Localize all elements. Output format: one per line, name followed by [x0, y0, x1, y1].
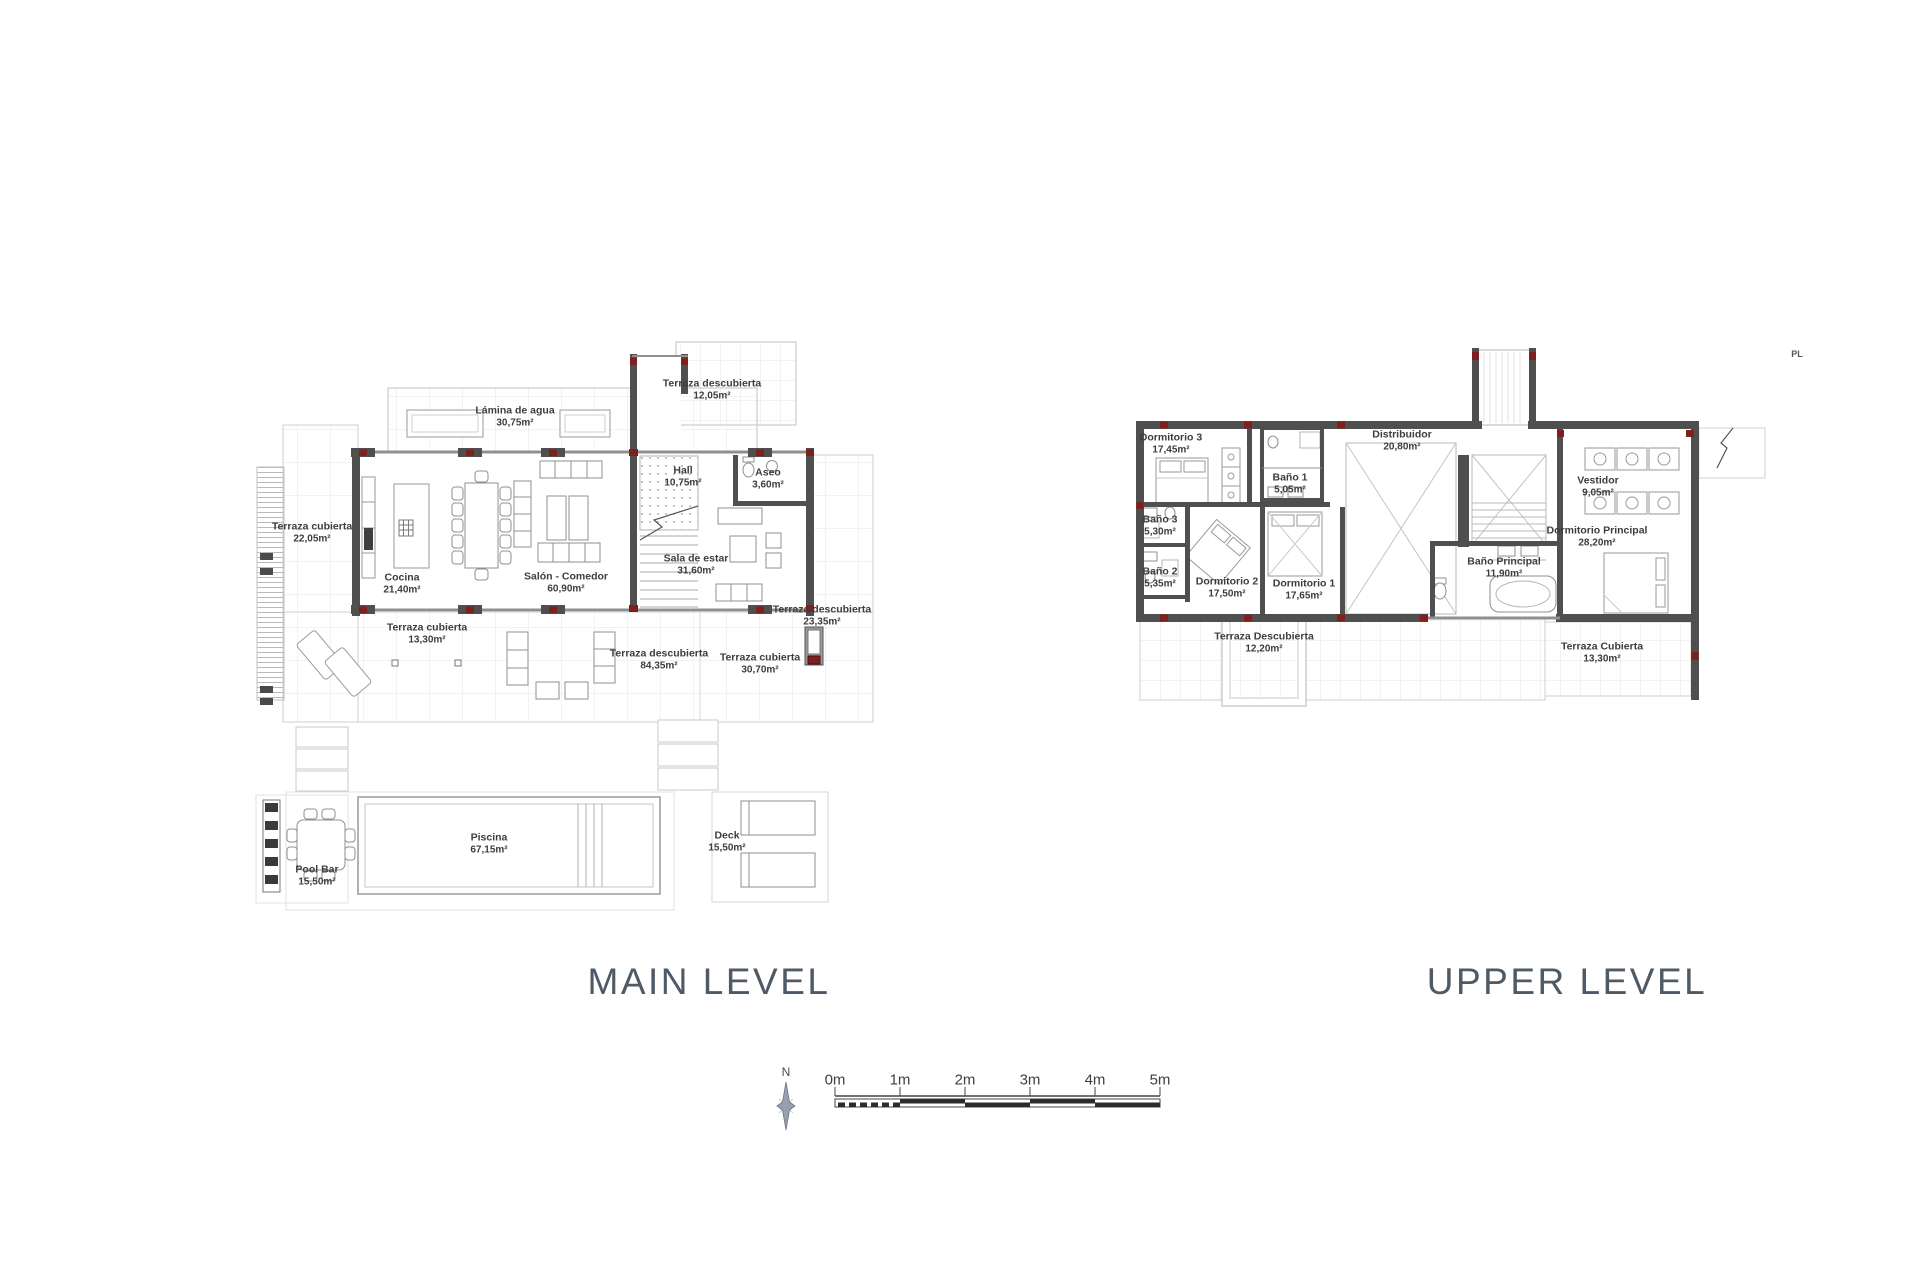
main-level-title: MAIN LEVEL: [588, 961, 831, 1003]
scale-label-3m: 3m: [1020, 1072, 1041, 1089]
room-label-terraza-cubierta-3070: Terraza cubierta30,70m²: [720, 652, 800, 677]
room-label-terraza-descubierta-1220: Terraza Descubierta12,20m²: [1214, 631, 1314, 656]
room-label-hall: Hall10,75m²: [664, 465, 701, 490]
room-label-bano-2: Baño 25,35m²: [1142, 566, 1177, 591]
north-label: N: [782, 1065, 791, 1079]
room-label-sala-de-estar: Sala de estar31,60m²: [664, 553, 729, 578]
room-label-dormitorio-1: Dormitorio 117,65m²: [1273, 578, 1335, 603]
scale-label-4m: 4m: [1085, 1072, 1106, 1089]
room-label-dormitorio-3: Dormitorio 317,45m²: [1140, 432, 1202, 457]
room-label-lamina-de-agua: Lámina de agua30,75m²: [475, 405, 554, 430]
upper-level-title: UPPER LEVEL: [1427, 961, 1707, 1003]
scale-label-2m: 2m: [955, 1072, 976, 1089]
room-label-terraza-descubierta-2335: Terraza descubierta23,35m²: [773, 604, 871, 629]
room-label-terraza-descubierta-8435: Terraza descubierta84,35m²: [610, 648, 708, 673]
room-label-piscina: Piscina67,15m²: [470, 832, 507, 857]
scale-label-1m: 1m: [890, 1072, 911, 1089]
corner-mark: PL: [1791, 349, 1803, 359]
north-arrow-icon: [777, 1082, 795, 1130]
room-label-terraza-descubierta-1205: Terraza descubierta12,05m²: [663, 378, 761, 403]
room-label-terraza-cubierta-1330: Terraza cubierta13,30m²: [387, 622, 467, 647]
room-label-bano-1: Baño 15,05m²: [1272, 472, 1307, 497]
room-label-cocina: Cocina21,40m²: [383, 572, 420, 597]
room-label-dormitorio-principal: Dormitorio Principal28,20m²: [1547, 525, 1648, 550]
room-label-aseo: Aseo3,60m²: [752, 467, 784, 492]
scale-label-0m: 0m: [825, 1072, 846, 1089]
room-label-terraza-cubierta-2205: Terraza cubierta22,05m²: [272, 521, 352, 546]
room-label-bano-3: Baño 35,30m²: [1142, 514, 1177, 539]
room-label-deck: Deck15,50m²: [708, 830, 745, 855]
room-label-distribuidor: Distribuidor20,80m²: [1372, 429, 1432, 454]
scale-label-5m: 5m: [1150, 1072, 1171, 1089]
room-label-pool-bar: Pool Bar15,50m²: [295, 864, 338, 889]
room-label-bano-principal: Baño Principal11,90m²: [1467, 556, 1541, 581]
room-label-vestidor: Vestidor9,05m²: [1577, 475, 1618, 500]
room-label-dormitorio-2: Dormitorio 217,50m²: [1196, 576, 1258, 601]
room-label-terraza-cubierta-1330-upper: Terraza Cubierta13,30m²: [1561, 641, 1643, 666]
room-label-salon-comedor: Salón - Comedor60,90m²: [524, 571, 608, 596]
